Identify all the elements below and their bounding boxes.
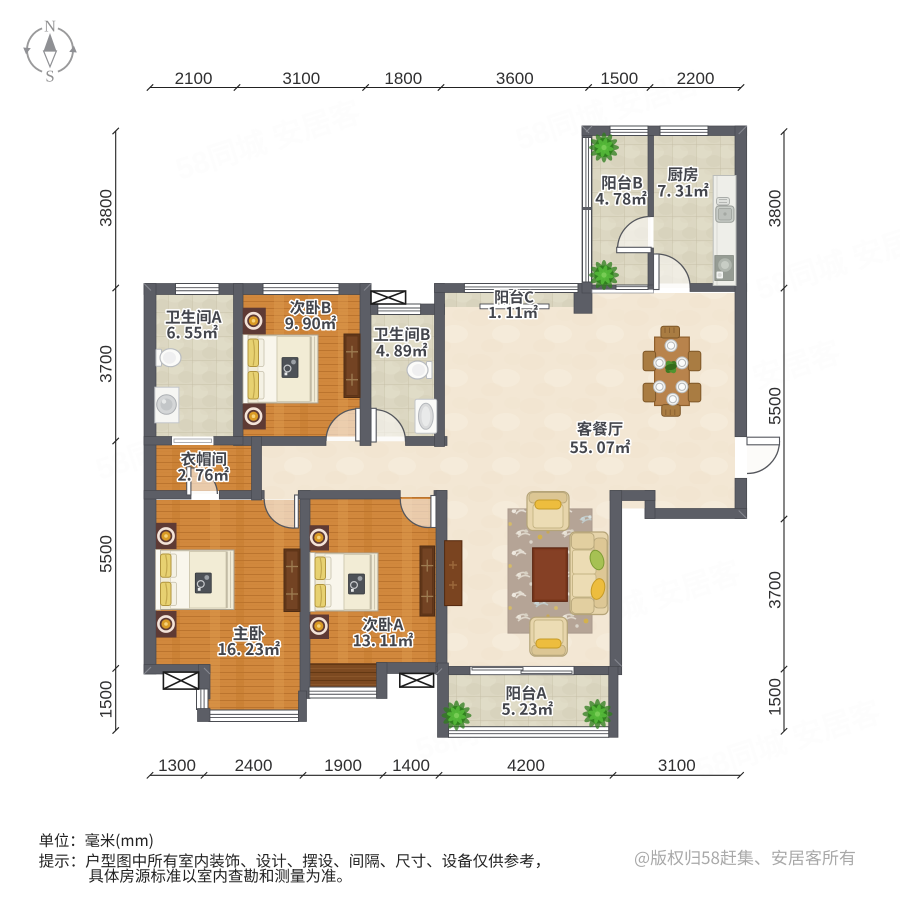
svg-text:1300: 1300 [158, 756, 196, 775]
svg-text:2200: 2200 [677, 69, 715, 88]
svg-text:3100: 3100 [658, 756, 696, 775]
svg-text:1800: 1800 [384, 69, 422, 88]
svg-text:5500: 5500 [97, 535, 116, 573]
svg-text:2400: 2400 [235, 756, 273, 775]
svg-text:1500: 1500 [97, 681, 116, 719]
svg-text:5500: 5500 [766, 387, 785, 425]
svg-text:1400: 1400 [392, 756, 430, 775]
svg-text:1900: 1900 [324, 756, 362, 775]
svg-text:2100: 2100 [175, 69, 213, 88]
svg-text:3800: 3800 [97, 189, 116, 227]
svg-text:1500: 1500 [766, 678, 785, 716]
svg-text:3800: 3800 [766, 190, 785, 228]
svg-text:3100: 3100 [282, 69, 320, 88]
svg-text:3600: 3600 [496, 69, 534, 88]
svg-text:4200: 4200 [507, 756, 545, 775]
svg-text:1500: 1500 [600, 69, 638, 88]
svg-text:3700: 3700 [766, 571, 785, 609]
svg-text:3700: 3700 [97, 345, 116, 383]
